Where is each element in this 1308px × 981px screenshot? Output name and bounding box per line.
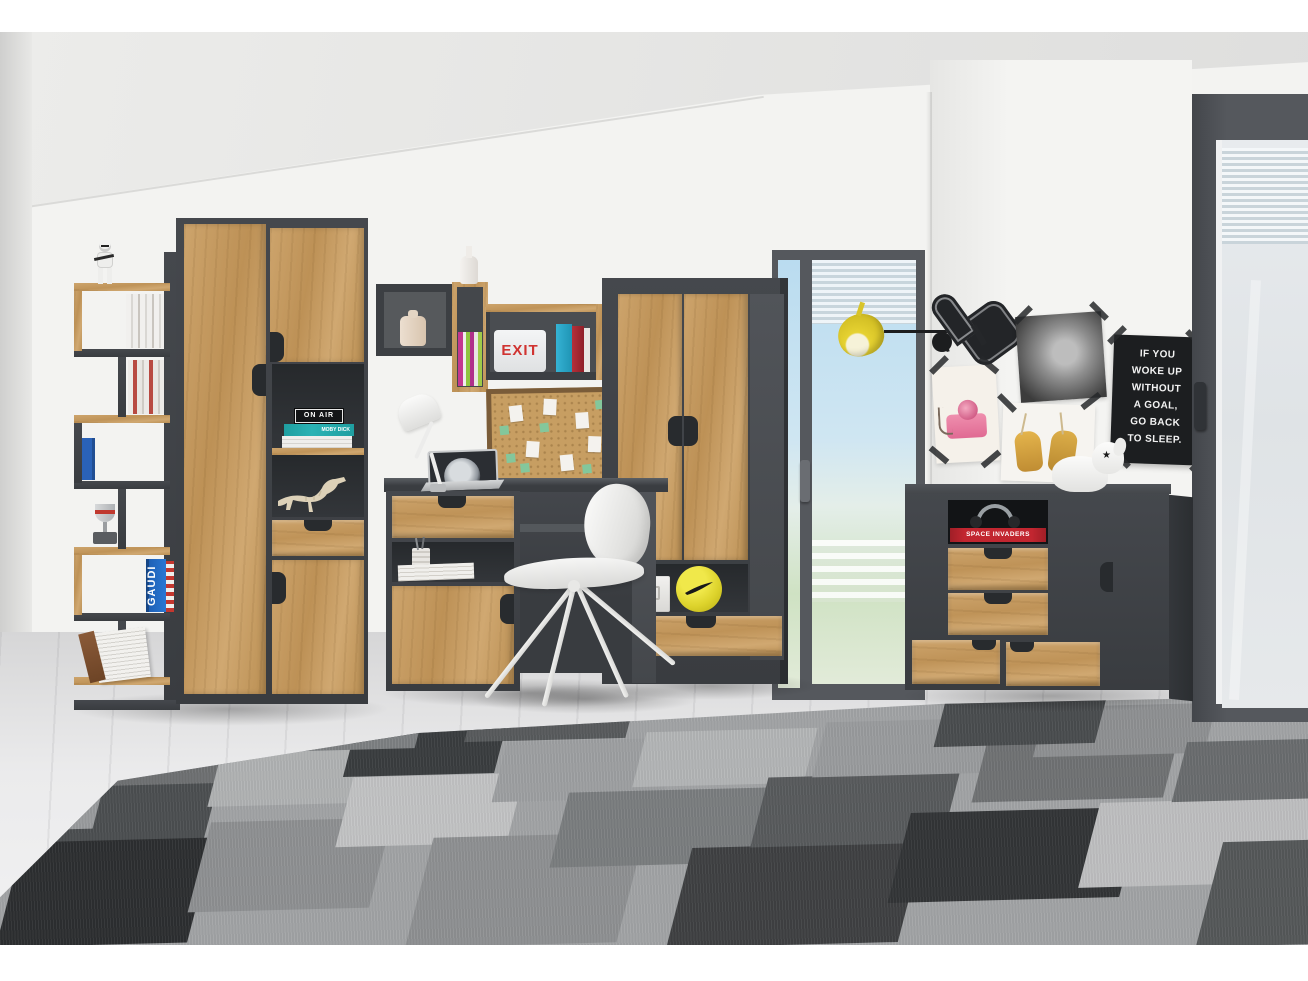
showroom-photo: IF YOU WOKE UP WITHOUT A GOAL, GO BACK T… [0,0,1308,981]
office-chair [470,482,710,712]
sideboard-side-panel [1169,495,1193,702]
desk-cabinet-drawer-handle [438,496,466,508]
tall-cabinet-right-door [270,228,364,362]
ladder-shelf-board [74,349,170,357]
sideboard-drawer-1-handle [984,548,1012,559]
book-stack-white [282,436,352,448]
ladder-shelf-board [74,283,170,291]
right-window [1192,94,1308,722]
tall-cabinet-drawer-handle [304,520,332,531]
stormtrooper-visor [101,245,109,247]
sticky-note [520,463,530,473]
on-air-box: ON AIR [294,408,344,424]
books-row [128,360,164,414]
bottle-vase [460,256,478,284]
moby-dick-book: MOBY DICK [284,424,354,436]
wardrobe-side-door [750,294,784,660]
sideboard-bottom-drawer-left-handle [972,640,996,650]
vase-lid [408,310,418,318]
stormtrooper-leg [107,268,112,284]
right-window-reflection [1229,280,1261,700]
books-row [126,294,164,348]
exit-sign: EXIT [494,330,546,372]
pinned-note [526,441,540,458]
book-striped [166,561,174,612]
sideboard-top [905,484,1171,494]
desk-lamp-arm-lower [429,452,443,488]
ladder-shelf-upright [74,291,82,351]
stormtrooper-leg [98,268,103,284]
tall-cabinet-open-shelf: MOBY DICK ON AIR [272,364,364,450]
shoes-photo-left-shoe [1014,430,1044,472]
portrait-photo [1015,311,1107,403]
book-white [584,328,590,372]
sticky-note [506,453,516,463]
tall-cabinet-right-door-handle [270,332,284,362]
wall-shelf-square [376,284,454,356]
chair-hub [568,580,580,592]
book-blue [82,438,95,480]
sideboard-open-shelf: SPACE INVADERS [948,500,1048,544]
wardrobe-door-handle [684,416,698,446]
pinned-note [575,412,589,429]
pinned-note [509,405,524,422]
headphones-cup [970,516,982,528]
window-fence-view [812,540,916,602]
desk-lamp-head [394,390,442,433]
chair-leg [575,580,676,666]
desk-lamp-base [430,484,446,492]
wardrobe-door-handle [668,416,682,446]
wall-shelf-long-top [486,304,604,312]
room-scene: IF YOU WOKE UP WITHOUT A GOAL, GO BACK T… [0,32,1308,945]
book-blue [556,324,572,372]
right-window-blinds [1222,148,1308,244]
tall-cabinet-lower-door-handle [272,572,286,604]
pinned-note [543,399,557,416]
space-invaders-book: SPACE INVADERS [950,528,1046,542]
trophy-stem [103,522,107,532]
ladder-shelf-upright [118,357,126,417]
pinned-note [588,436,602,452]
left-window-handle [800,460,810,502]
tall-cabinet-left-door [184,224,266,694]
ladder-shelf-board [74,481,170,489]
right-window-glass [1222,140,1308,708]
sideboard-bottom-drawer-right-handle [1010,642,1034,652]
ladder-shelf-upright [74,555,82,615]
books-column [458,332,482,386]
dog-figurine: ★ [1052,442,1128,492]
trophy-base [93,532,117,544]
gaudi-book: GAUDI [146,559,166,612]
ladder-shelf-board [74,613,170,621]
right-window-handle [1194,382,1206,430]
magazine-pile [398,563,475,582]
wall-shelf-long: EXIT [486,304,604,380]
ladder-shelf-upright [74,423,82,483]
camera-photo-strap [938,407,953,436]
headphones-cup [1008,516,1020,528]
stormtrooper-figurine [92,240,118,284]
ladder-bookshelf-base [74,700,180,710]
trophy [88,502,122,546]
book-red [572,326,584,372]
sideboard-door-handle [1100,562,1113,592]
sideboard-drawer-2-handle [984,593,1012,604]
wall-shelf-column [452,282,488,392]
trophy-band [95,510,115,514]
tall-cabinet-dino-shelf [272,455,364,517]
sticky-note [499,425,509,435]
sticky-note [539,423,549,433]
desk-lamp [382,394,462,494]
camera-photo [932,364,1001,463]
sticky-note [582,464,592,474]
dog-star-eye: ★ [1102,450,1111,461]
pinned-note [560,454,575,471]
vase [400,316,426,346]
bottle-vase-neck [466,246,472,258]
tall-cabinet-left-door-handle [252,364,266,396]
tall-cabinet-shelf-board [272,448,364,455]
dinosaur-skeleton [276,473,360,517]
